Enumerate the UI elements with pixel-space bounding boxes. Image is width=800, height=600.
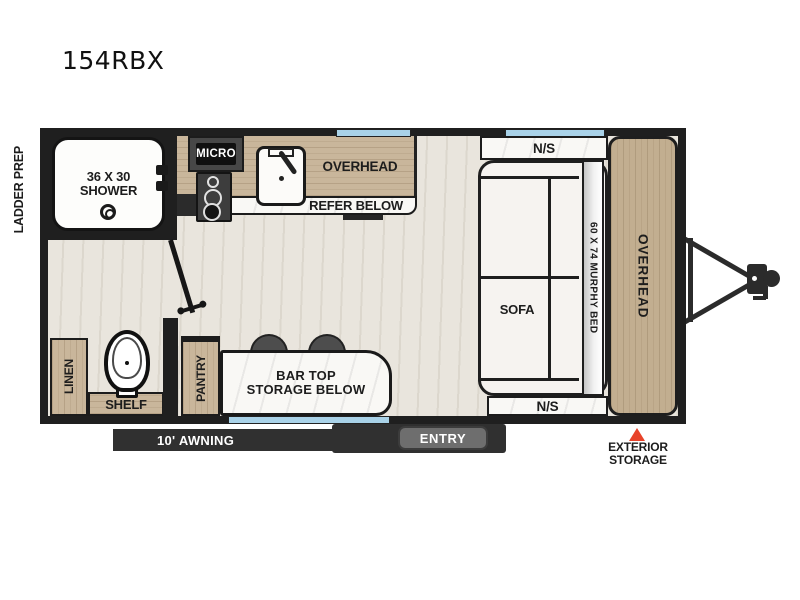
microwave: MICRO [188,136,244,172]
murphy-bed-strip: 60 X 74 MURPHY BED [582,160,604,396]
sofa-divider-line [481,176,579,179]
hitch-frame-arm [683,236,753,279]
window-kitchen [336,129,411,137]
hitch-crossbar [688,238,693,322]
sink-drain [279,176,284,181]
sofa-label: SOFA [486,301,548,317]
window-bar [228,416,390,424]
microwave-label-plate: MICRO [196,143,236,165]
hitch-frame-arm [683,281,753,324]
sofa-divider-line [481,276,579,279]
stove-burner [203,203,221,221]
stove-burner [207,176,219,188]
shower-valve [156,165,168,175]
bar-top: BAR TOP STORAGE BELOW [220,350,392,416]
ladder-prep-label: LADDER PREP [6,136,32,244]
entry-door-badge: ENTRY [398,426,488,450]
hitch-coupler-pin [752,276,757,281]
rear-overhead-cabinet: OVERHEAD [608,136,678,416]
model-title: 154RBX [62,46,164,75]
wall-segment [163,318,178,416]
hitch-ball [763,270,780,287]
shower-valve [156,181,168,191]
linen-cabinet: LINEN [50,338,88,416]
pantry-cabinet: PANTRY [181,336,220,416]
shower-label: 36 X 30 SHOWER [80,170,137,197]
sofa-divider-line [481,378,579,381]
bar-top-label: BAR TOP STORAGE BELOW [247,369,366,398]
hitch-jack-foot [753,296,766,300]
refer-vent [343,215,383,220]
exterior-storage-label: EXTERIOR STORAGE [595,441,681,467]
kitchen-overhead-label: OVERHEAD [307,157,413,175]
nightstand-top: N/S [480,136,608,160]
floorplan-154rbx: 154RBX LADDER PREP 36 X 30 SHOWER OVERHE… [0,0,800,600]
toilet-flush [125,361,129,365]
toilet-bowl-inner [112,337,142,379]
shower-drain [100,204,116,220]
nightstand-bottom: N/S [487,396,608,416]
